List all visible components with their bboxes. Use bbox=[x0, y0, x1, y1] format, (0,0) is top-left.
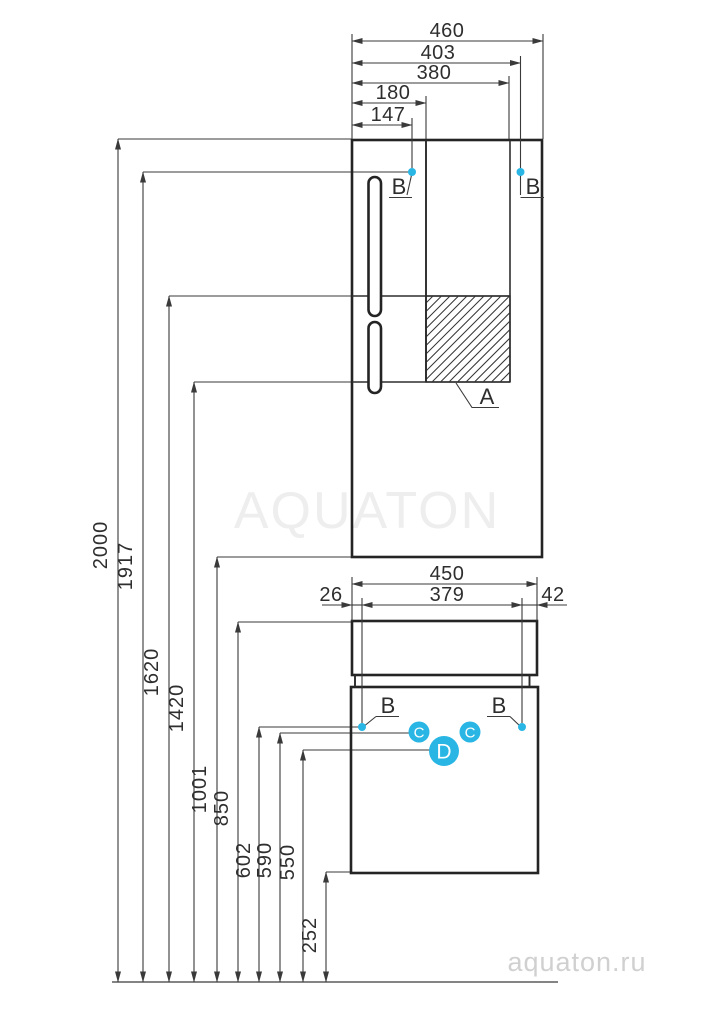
upper-dim-180: 180 bbox=[376, 82, 411, 104]
height-dim-2000: 2000 bbox=[90, 521, 112, 570]
upper-dim-460: 460 bbox=[430, 20, 465, 42]
height-dim-1917: 1917 bbox=[115, 542, 137, 591]
height-dim-850: 850 bbox=[211, 790, 233, 826]
hatch-callout-label: A bbox=[480, 384, 495, 409]
lower-hinge-left-label: B bbox=[381, 693, 396, 718]
hatch-area-border bbox=[426, 296, 510, 382]
lower-cabinet: 450 379 26 42 B B C C D bbox=[319, 563, 567, 873]
height-dim-550: 550 bbox=[277, 844, 299, 880]
height-dim-252: 252 bbox=[299, 917, 321, 953]
door-handle-slot-lower bbox=[369, 322, 382, 393]
site-watermark: aquaton.ru bbox=[507, 947, 646, 977]
height-dim-1420: 1420 bbox=[166, 684, 188, 733]
height-dimensions: 2000 1917 1620 1420 1001 850 602 590 550… bbox=[90, 139, 558, 982]
upper-hinge-left-leader bbox=[407, 173, 412, 195]
technical-drawing-page: AQUATON aquaton.ru 2000 1917 1620 bbox=[0, 0, 723, 1024]
marker-c-left-label: C bbox=[414, 725, 425, 742]
lower-dim-379: 379 bbox=[430, 584, 465, 606]
hatch-lines bbox=[427, 297, 510, 382]
upper-hinge-right-dot bbox=[517, 168, 525, 176]
height-dim-590: 590 bbox=[254, 842, 276, 878]
height-dim-1620: 1620 bbox=[141, 648, 163, 697]
lower-dim-26: 26 bbox=[319, 584, 342, 606]
upper-cabinet: 460 403 380 180 147 B B A bbox=[352, 20, 544, 557]
drawing-canvas: AQUATON aquaton.ru 2000 1917 1620 bbox=[0, 0, 723, 1024]
height-dim-602: 602 bbox=[233, 842, 255, 878]
lower-hinge-left-dot bbox=[358, 723, 366, 731]
upper-hinge-right-label: B bbox=[526, 174, 541, 199]
lower-cabinet-worktop bbox=[352, 621, 537, 675]
upper-dim-147: 147 bbox=[371, 104, 406, 126]
lower-dim-450: 450 bbox=[430, 563, 465, 585]
marker-c-right-label: C bbox=[465, 725, 476, 742]
upper-hinge-left-dot bbox=[408, 168, 416, 176]
marker-d-label: D bbox=[436, 741, 451, 764]
brand-watermark: AQUATON bbox=[234, 482, 500, 540]
upper-dim-403: 403 bbox=[421, 42, 456, 64]
upper-hinge-left-label: B bbox=[392, 174, 407, 199]
lower-cabinet-door bbox=[351, 687, 538, 873]
height-dim-1001: 1001 bbox=[189, 765, 211, 814]
door-handle-slot-upper bbox=[369, 177, 382, 316]
lower-dim-42: 42 bbox=[541, 584, 564, 606]
lower-hinge-right-dot bbox=[518, 723, 526, 731]
lower-hinge-right-label: B bbox=[492, 693, 507, 718]
upper-dim-380: 380 bbox=[417, 62, 452, 84]
